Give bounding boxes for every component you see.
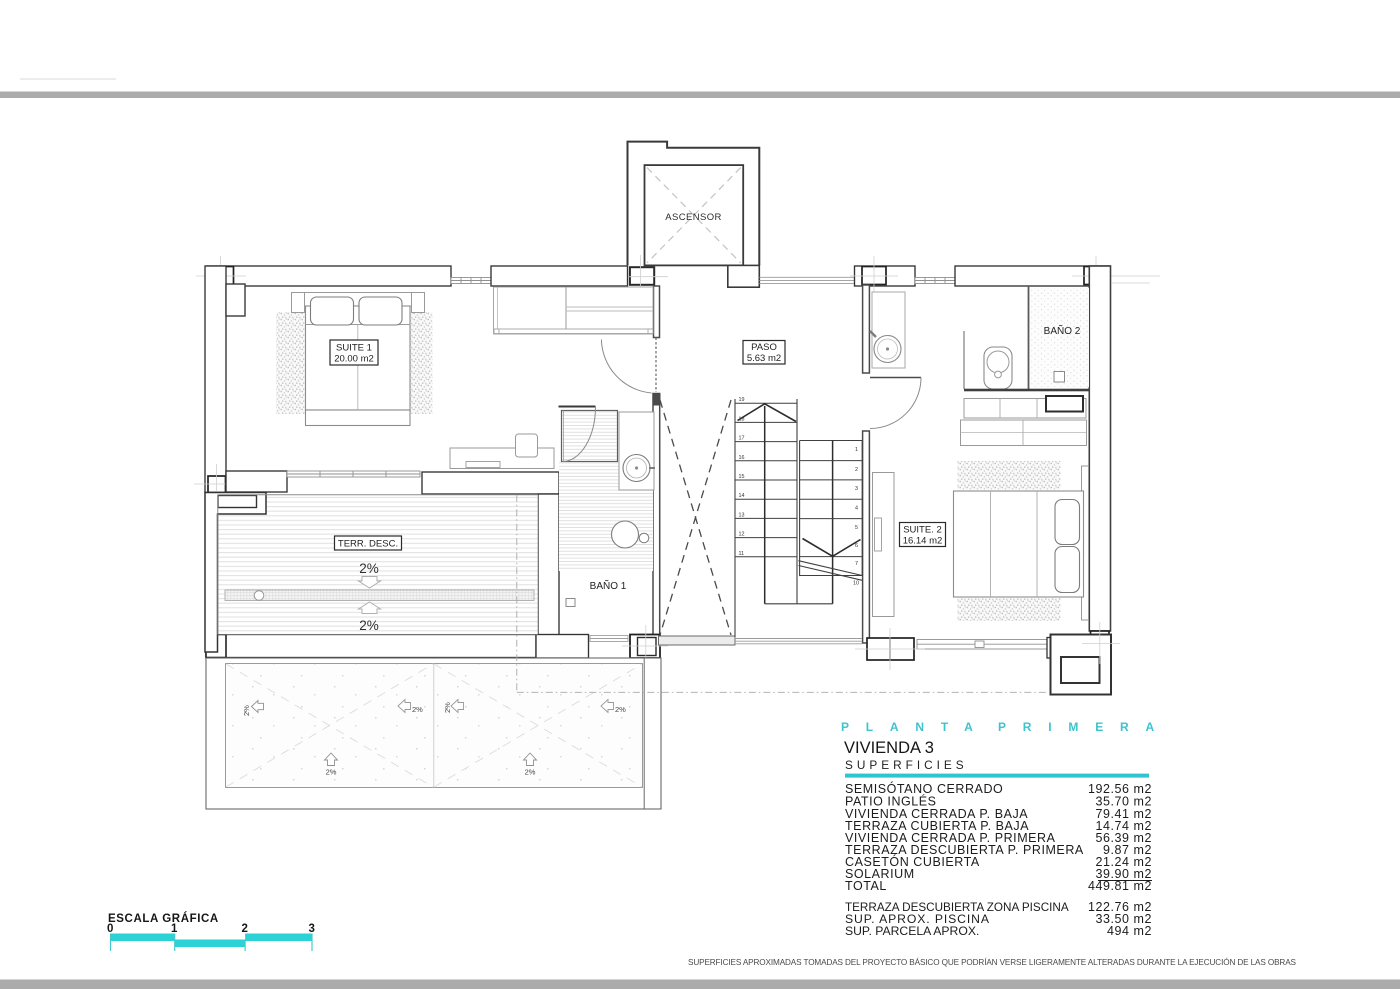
svg-text:2%: 2% (412, 705, 423, 714)
svg-text:10: 10 (853, 581, 859, 587)
svg-text:17: 17 (739, 436, 745, 442)
svg-text:16: 16 (739, 455, 745, 461)
svg-text:5: 5 (855, 525, 858, 531)
svg-text:11: 11 (739, 551, 745, 557)
svg-text:18: 18 (739, 416, 745, 422)
svg-text:2%: 2% (359, 618, 379, 633)
svg-text:VIVIENDA 3: VIVIENDA 3 (844, 739, 934, 757)
svg-text:PLANTA: PLANTA (841, 720, 990, 734)
svg-text:2%: 2% (326, 768, 337, 777)
svg-text:494 m2: 494 m2 (1107, 924, 1152, 938)
svg-text:16.14 m2: 16.14 m2 (903, 536, 943, 547)
svg-text:2: 2 (242, 923, 248, 935)
svg-text:14: 14 (739, 493, 745, 499)
svg-text:6: 6 (855, 543, 858, 549)
svg-text:2%: 2% (525, 768, 536, 777)
svg-text:2%: 2% (443, 702, 452, 713)
svg-text:3: 3 (309, 923, 315, 935)
svg-text:20.00 m2: 20.00 m2 (334, 354, 374, 365)
svg-text:PRIMERA: PRIMERA (998, 720, 1171, 734)
svg-text:1: 1 (171, 923, 178, 935)
svg-text:2%: 2% (359, 561, 379, 576)
svg-text:12: 12 (739, 532, 745, 538)
svg-text:3: 3 (855, 486, 858, 492)
svg-text:BAÑO 1: BAÑO 1 (590, 579, 627, 592)
svg-text:SUITE 1: SUITE 1 (336, 343, 372, 354)
svg-text:7: 7 (855, 561, 858, 567)
svg-text:449.81 m2: 449.81 m2 (1088, 879, 1152, 893)
svg-text:SUPERFICIES APROXIMADAS TOMADA: SUPERFICIES APROXIMADAS TOMADAS DEL PROY… (688, 957, 1297, 967)
svg-text:5.63 m2: 5.63 m2 (747, 353, 781, 364)
svg-text:SUP. PARCELA APROX.: SUP. PARCELA APROX. (845, 924, 979, 938)
svg-text:ASCENSOR: ASCENSOR (665, 212, 722, 223)
svg-text:PASO: PASO (751, 342, 777, 353)
svg-text:2%: 2% (615, 705, 626, 714)
svg-text:2%: 2% (242, 705, 251, 716)
svg-text:0: 0 (107, 923, 113, 935)
svg-text:TOTAL: TOTAL (845, 879, 887, 893)
svg-text:2: 2 (855, 467, 858, 473)
svg-text:15: 15 (739, 474, 745, 480)
svg-text:ESCALA GRÁFICA: ESCALA GRÁFICA (108, 912, 219, 925)
svg-text:1: 1 (855, 447, 858, 453)
svg-text:TERR. DESC.: TERR. DESC. (338, 539, 398, 550)
svg-text:4: 4 (855, 506, 858, 512)
svg-text:BAÑO 2: BAÑO 2 (1044, 324, 1081, 337)
svg-text:SUPERFICIES: SUPERFICIES (845, 758, 968, 772)
svg-text:13: 13 (739, 512, 745, 518)
svg-text:SUITE. 2: SUITE. 2 (903, 525, 942, 536)
svg-text:19: 19 (739, 397, 745, 403)
